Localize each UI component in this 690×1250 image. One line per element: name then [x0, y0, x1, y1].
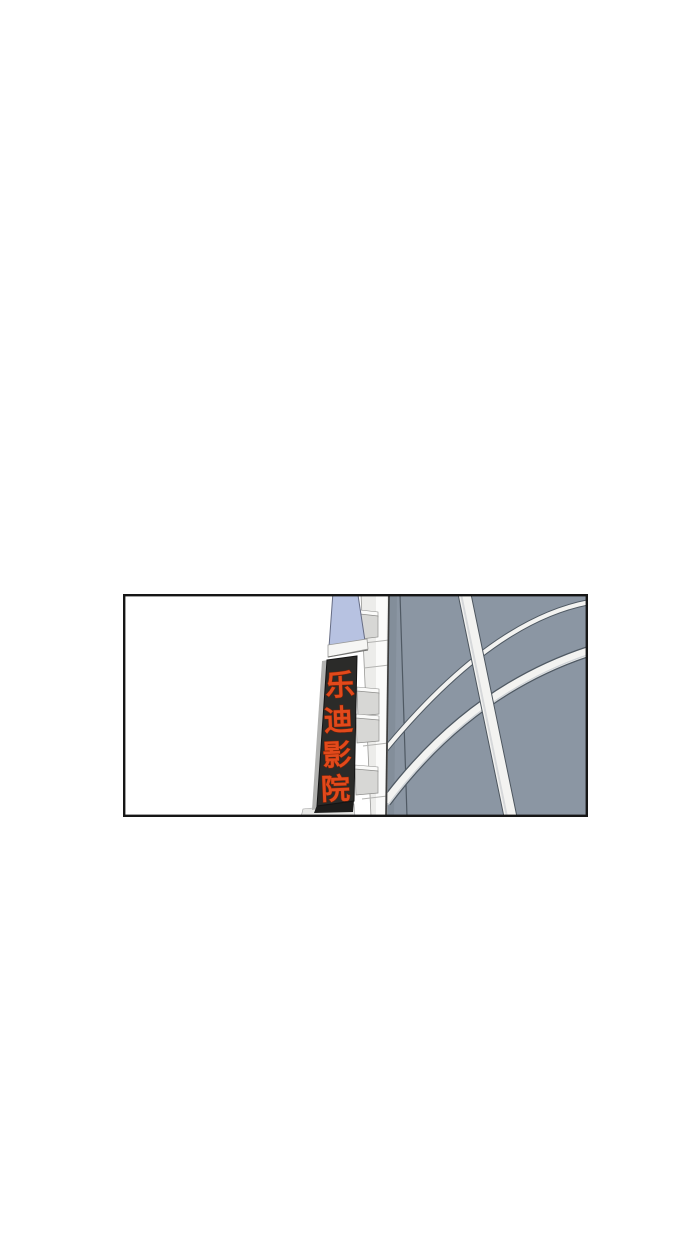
sign-character: 影 [322, 737, 352, 772]
comic-panel: 乐 迪 影 院 [123, 594, 588, 817]
bracket [356, 714, 379, 743]
sign-character: 院 [320, 771, 350, 806]
bracket [355, 765, 378, 795]
sign-character: 迪 [323, 702, 353, 737]
comic-page: { "panel": { "sign": { "text": "乐迪影院", "… [0, 0, 690, 1250]
sign-character: 乐 [325, 667, 355, 702]
building-facade [385, 594, 588, 817]
panel-scene: 乐 迪 影 院 [123, 594, 588, 817]
bracket [357, 687, 379, 716]
